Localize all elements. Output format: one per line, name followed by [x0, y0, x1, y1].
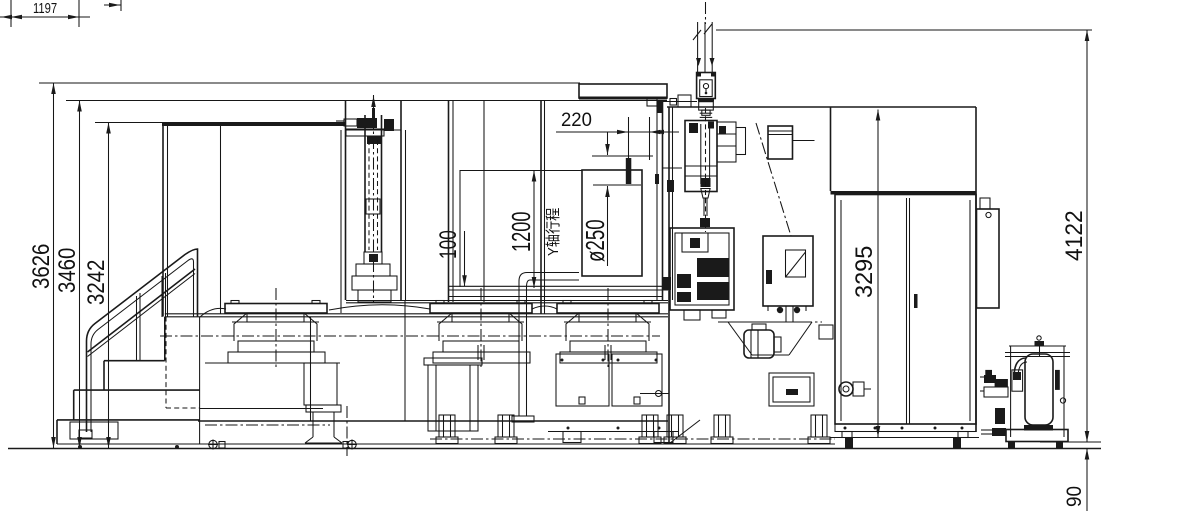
svg-text:4122: 4122	[1060, 210, 1087, 261]
svg-text:1197: 1197	[33, 0, 57, 16]
svg-text:220: 220	[561, 110, 592, 132]
svg-text:90: 90	[1063, 486, 1086, 507]
svg-text:3242: 3242	[82, 260, 109, 305]
svg-text:3626: 3626	[27, 244, 54, 289]
svg-text:3295: 3295	[851, 246, 878, 298]
svg-text:1200: 1200	[507, 212, 536, 252]
svg-text:ø250: ø250	[580, 219, 610, 262]
svg-text:Y轴行程: Y轴行程	[544, 208, 561, 256]
svg-text:3460: 3460	[53, 248, 80, 293]
